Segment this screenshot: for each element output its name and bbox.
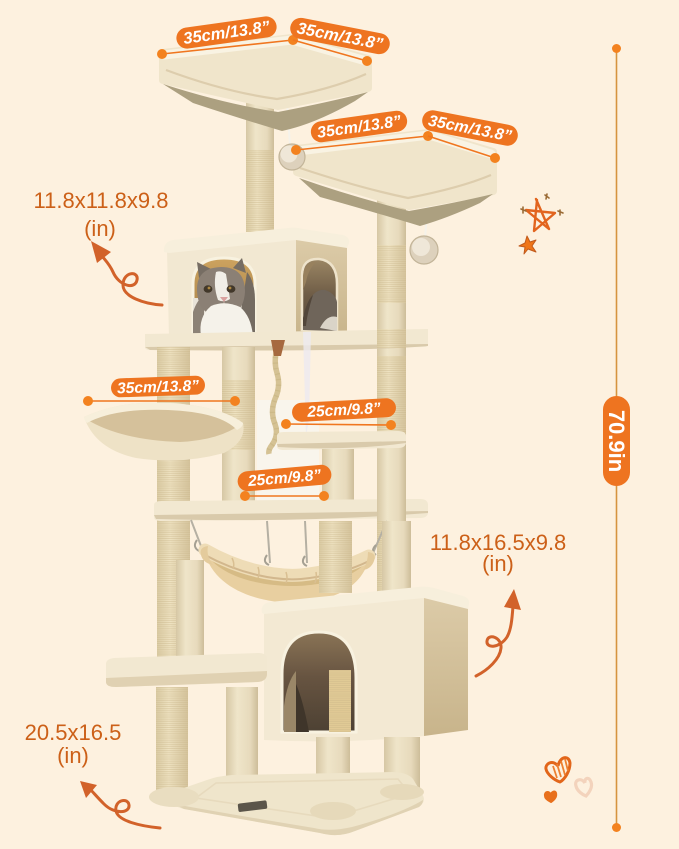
svg-text:(in): (in) xyxy=(84,216,116,241)
svg-text:20.5x16.5: 20.5x16.5 xyxy=(25,720,122,745)
svg-text:11.8x11.8x9.8: 11.8x11.8x9.8 xyxy=(34,188,169,213)
svg-text:(in): (in) xyxy=(482,551,514,576)
svg-text:70.9in: 70.9in xyxy=(604,410,629,472)
svg-text:35cm/13.8”: 35cm/13.8” xyxy=(117,378,200,398)
svg-text:(in): (in) xyxy=(57,743,89,768)
